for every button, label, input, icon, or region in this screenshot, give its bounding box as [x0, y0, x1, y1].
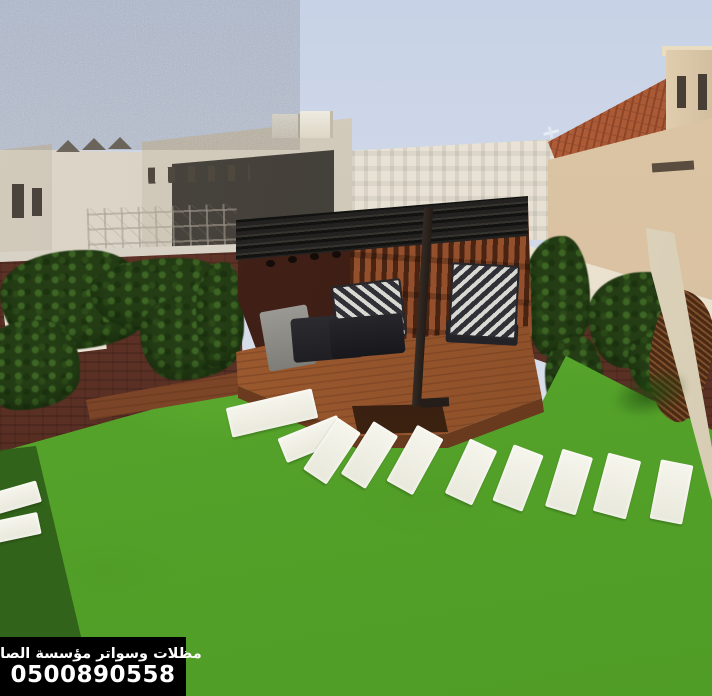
- rooftop-garden-photo: مظلات وسواتر مؤسسة الصالح 0500890558: [0, 0, 712, 696]
- building-window: [32, 188, 42, 216]
- watermark-caption: مظلات وسواتر مؤسسة الصالح 0500890558: [0, 637, 186, 696]
- pergola-fixture-dot: [288, 256, 297, 263]
- pergola-post-base: [421, 397, 449, 407]
- watermark-company-name: مظلات وسواتر مؤسسة الصالح: [0, 645, 202, 663]
- watermark-phone-number: 0500890558: [10, 663, 175, 687]
- villa-tower-window: [698, 74, 707, 110]
- pergola-fixture-dot: [310, 253, 319, 260]
- villa-tower-window: [677, 76, 686, 108]
- roof-gable: [82, 138, 106, 150]
- pergola-fixture-dot: [266, 260, 275, 267]
- rooftop-unit: [300, 111, 333, 138]
- building-window: [12, 184, 24, 218]
- pergola-fixture-dot: [332, 251, 341, 258]
- rooftop-unit: [272, 114, 301, 138]
- striped-armchair: [448, 262, 520, 339]
- sofa-dark-section: [328, 313, 405, 359]
- ivy-hedge: [196, 262, 244, 367]
- roof-gable: [108, 137, 132, 149]
- roof-gable: [56, 140, 80, 152]
